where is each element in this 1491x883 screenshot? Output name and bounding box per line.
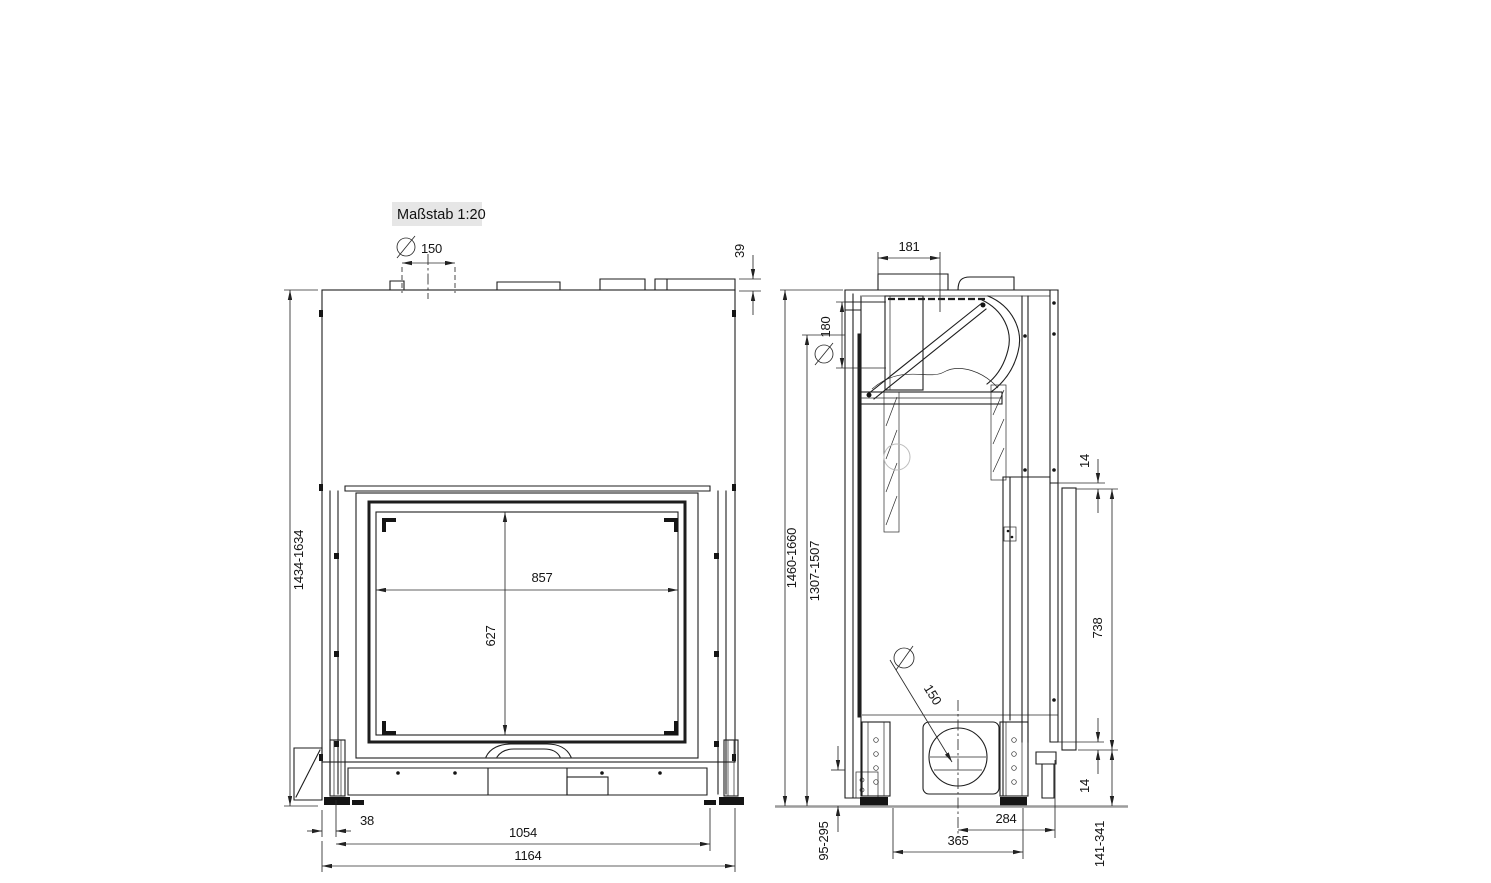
glass-corner-brackets — [382, 518, 678, 735]
dim-front-overall-height: 1434-1634 — [284, 290, 318, 806]
dim-label-rear-floor-clearance: 141-341 — [1092, 821, 1107, 867]
base-panel-lines — [348, 762, 707, 795]
right-foot-pads — [704, 797, 744, 805]
dim-label-rear-outlet-diameter: 180 — [818, 316, 833, 337]
bolt-icon — [1012, 738, 1017, 743]
dim-label-flue-center-offset: 181 — [898, 239, 919, 254]
pivot-dot — [867, 393, 872, 398]
rear-duct-walls — [1022, 296, 1028, 742]
dim-shield-gap-bottom: 14 — [1058, 718, 1104, 793]
dim-heat-shield-height: 738 — [1078, 489, 1118, 750]
right-foot-thread-lines — [728, 740, 734, 796]
leader-line — [890, 660, 952, 762]
left-lamella-zigzag — [886, 397, 897, 525]
dim-label-shield-gap-top: 14 — [1077, 454, 1092, 468]
front-view — [294, 279, 744, 805]
clip-dot — [1011, 536, 1014, 539]
door-shelf-line — [345, 486, 710, 491]
side-base — [860, 715, 1058, 806]
dim-label-overall-width: 1164 — [514, 848, 541, 863]
side-top-tabs — [878, 274, 1014, 290]
dim-feet-spacing: 1054 — [336, 808, 710, 851]
dim-label-shield-gap-bottom: 14 — [1077, 779, 1092, 793]
bolt-dot — [1052, 698, 1056, 702]
bolt-dot — [1023, 468, 1027, 472]
rear-bracket-lines — [1006, 722, 1022, 796]
dim-front-collar-height: 39 — [732, 244, 761, 315]
dim-intake-center-to-rear: 284 — [958, 700, 1055, 838]
door-outer-frame — [356, 493, 698, 758]
pivot-dot — [981, 303, 986, 308]
bolt-icon — [1012, 752, 1017, 757]
dim-label-heat-shield-height: 738 — [1090, 617, 1105, 638]
diameter-symbol-slash — [397, 236, 415, 258]
dim-label-collar-height: 39 — [732, 244, 747, 258]
front-top-collar-tabs — [390, 279, 735, 290]
dim-label-base-width: 365 — [947, 833, 968, 848]
front-bracket-lines — [868, 722, 884, 796]
front-column-foot-plate — [856, 772, 878, 798]
dim-label-flue-diameter: 150 — [421, 241, 442, 256]
dim-label-side-overall-height: 1460-1660 — [784, 528, 799, 588]
rear-outer-wall — [1050, 290, 1058, 742]
dim-label-intake-center-to-rear: 284 — [995, 811, 1016, 826]
bolt-icon — [874, 780, 879, 785]
dim-shield-gap-top: 14 — [1058, 454, 1118, 513]
dim-label-glass-height: 627 — [483, 625, 498, 646]
front-right-foot — [704, 740, 744, 805]
dim-label-feet-spacing: 1054 — [509, 825, 537, 840]
front-base — [294, 740, 744, 805]
side-spring-lamellas — [884, 385, 1006, 532]
bolt-dot — [1023, 334, 1027, 338]
dim-label-air-intake-diameter: 150 — [921, 682, 945, 708]
dim-label-side-inner-height: 1307-1507 — [807, 541, 822, 601]
base-screw-dot — [453, 771, 457, 775]
right-lamella-band — [991, 385, 1006, 480]
dim-foot-inset: 38 — [307, 800, 374, 837]
rear-shield-support — [1036, 752, 1056, 798]
bolt-icon — [1012, 766, 1017, 771]
base-screw-dot — [396, 771, 400, 775]
door-handle — [486, 744, 571, 757]
front-door — [330, 486, 726, 794]
dim-front-floor-clearance: 95-295 — [816, 746, 845, 861]
extension-lines — [322, 800, 336, 837]
dim-label-overall-height: 1434-1634 — [291, 530, 306, 590]
firebox-rear-wall — [1003, 477, 1050, 795]
diameter-symbol-slash — [815, 343, 833, 365]
bolt-icon — [874, 752, 879, 757]
scale-label: Maßstab 1:20 — [397, 207, 486, 223]
base-screw-dot — [600, 771, 604, 775]
base-screw-dot — [658, 771, 662, 775]
rear-heat-shield — [1062, 488, 1076, 750]
bolt-icon — [874, 766, 879, 771]
dim-label-front-floor-clearance: 95-295 — [816, 821, 831, 860]
scale-badge: Maßstab 1:20 — [392, 202, 486, 226]
door-lift-diagonals — [868, 303, 986, 399]
dim-air-intake-diameter: 150 — [890, 646, 952, 762]
bolt-dot — [1052, 468, 1056, 472]
dim-glass-width: 857 — [376, 570, 678, 590]
bolt-dot — [1052, 301, 1056, 305]
dim-rear-floor-clearance: 141-341 — [1092, 750, 1112, 867]
dim-side-inner-height: 1307-1507 — [802, 335, 845, 806]
rear-foot-bracket — [1000, 722, 1028, 796]
bolt-icon — [1012, 780, 1017, 785]
fireplace-dimension-drawing: Maßstab 1:20 — [0, 0, 1491, 883]
front-edge-hinge-nubs — [319, 310, 736, 761]
dim-overall-width: 1164 — [322, 808, 735, 872]
left-outrigger-bracket — [294, 748, 322, 800]
front-bracket-pad — [860, 797, 888, 806]
side-view — [775, 274, 1128, 807]
rear-bracket-pad — [1000, 797, 1027, 806]
left-foot-pads — [324, 797, 364, 805]
bolt-dot — [1052, 332, 1056, 336]
extension-lines — [878, 252, 940, 312]
dim-flue-center-offset: 181 — [878, 239, 940, 312]
extension-lines — [739, 279, 761, 291]
hidden-extension-lines — [402, 267, 455, 293]
technical-drawing-page: Maßstab 1:20 — [0, 0, 1491, 883]
side-dimensions: 181 180 1460-1660 1307-1507 14 — [780, 239, 1118, 867]
dim-label-glass-width: 857 — [531, 570, 552, 585]
door-glass-frame — [369, 502, 685, 742]
base-step-box — [567, 777, 608, 795]
dim-glass-height: 627 — [483, 512, 505, 735]
detail-circle — [884, 444, 910, 470]
bolt-icon — [874, 738, 879, 743]
curved-duct-profile — [982, 296, 1020, 392]
side-top-assembly — [845, 274, 1058, 404]
door-glass-pane — [376, 512, 678, 735]
side-rear-panels — [1003, 290, 1076, 795]
clip-dot — [1007, 530, 1010, 533]
door-hinge-dots — [334, 553, 719, 747]
front-foot-bracket — [862, 722, 890, 796]
dim-label-foot-inset: 38 — [360, 813, 374, 828]
